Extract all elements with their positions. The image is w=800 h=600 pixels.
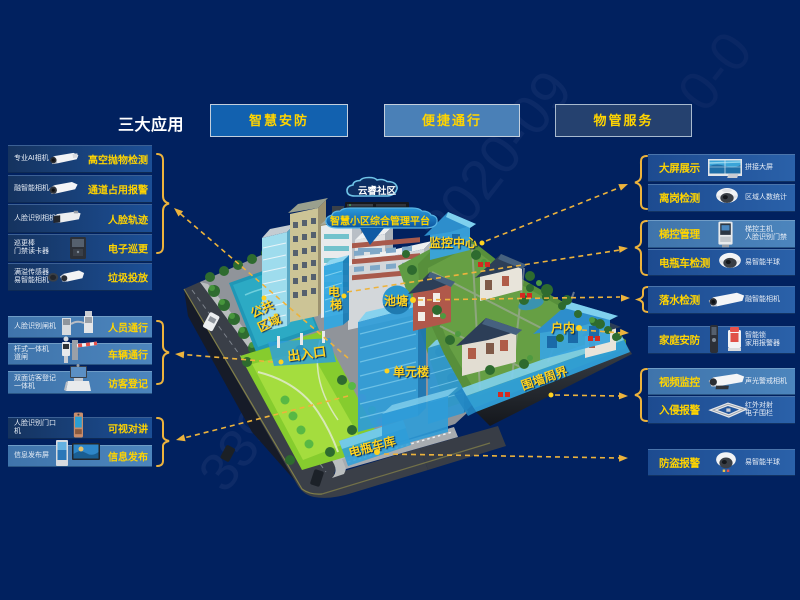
svg-text:单元楼: 单元楼	[393, 364, 429, 379]
svg-text:监控中心: 监控中心	[429, 235, 477, 250]
svg-text:智慧小区综合管理平台: 智慧小区综合管理平台	[330, 215, 430, 228]
svg-text:池塘: 池塘	[384, 293, 408, 308]
svg-text:户内: 户内	[551, 320, 575, 335]
svg-text:梯: 梯	[330, 297, 342, 312]
svg-text:电: 电	[328, 284, 340, 299]
svg-text:云睿社区: 云睿社区	[358, 185, 397, 197]
